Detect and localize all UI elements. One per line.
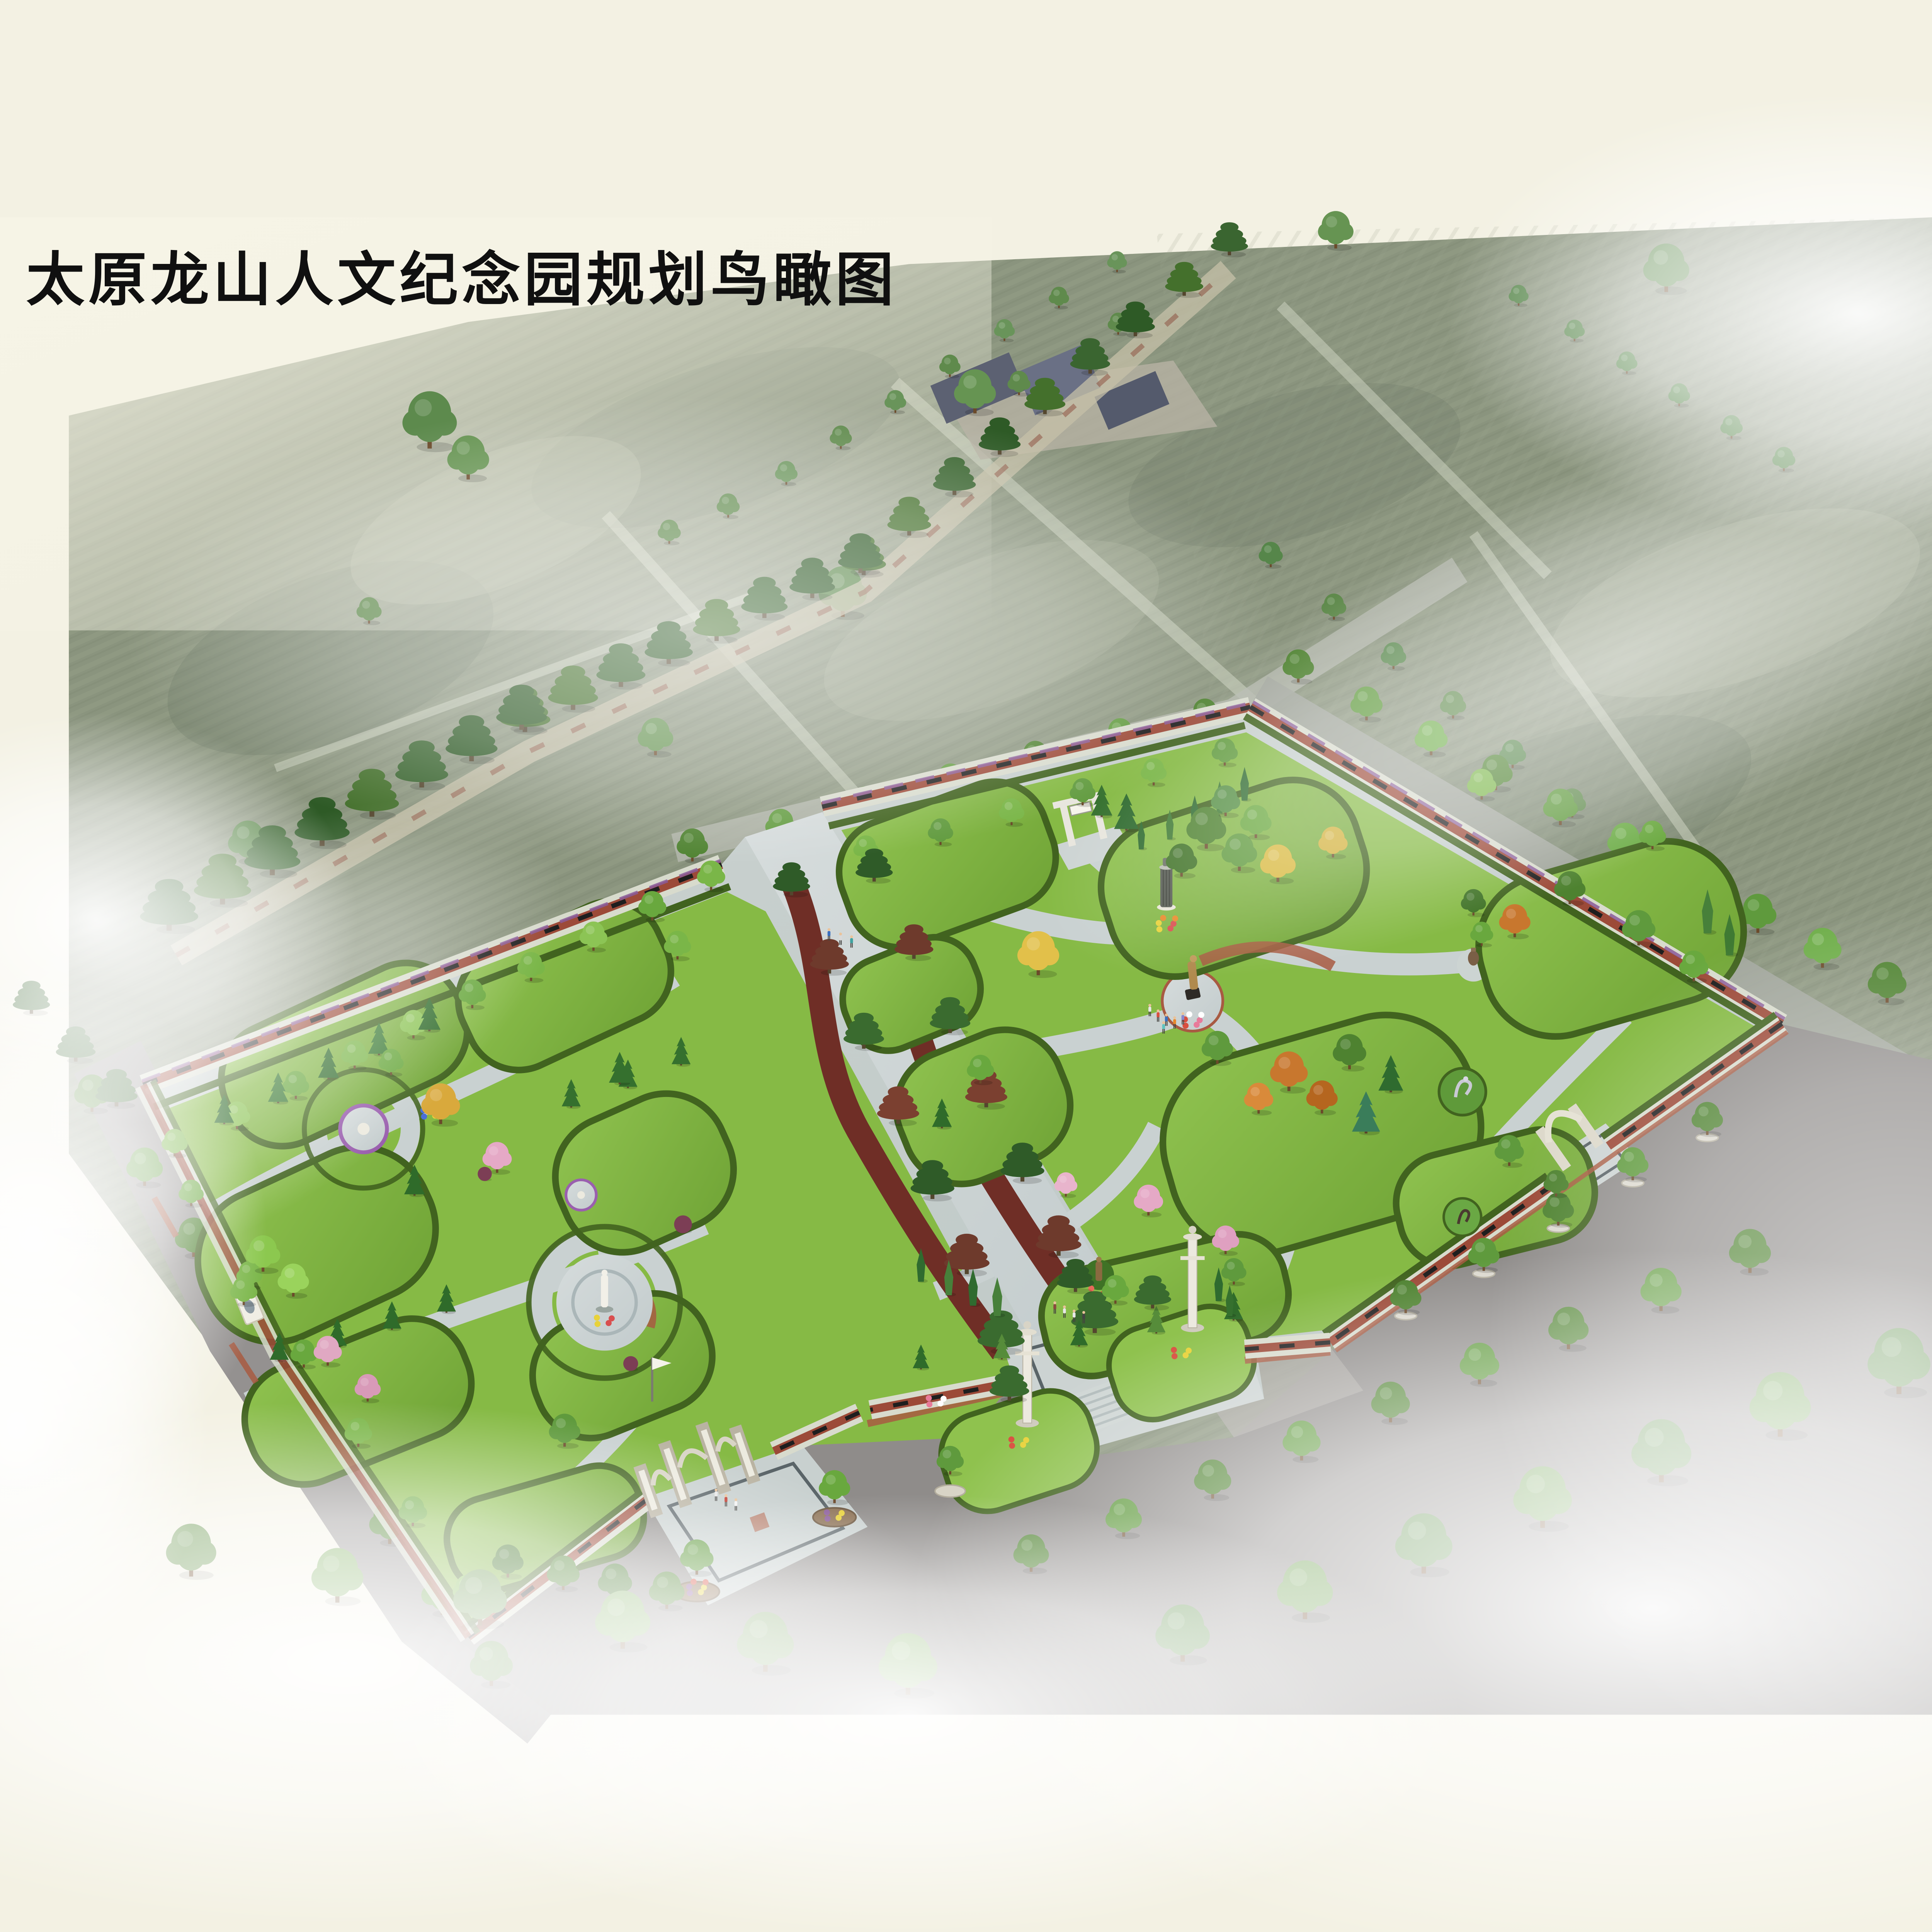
- fountain-small-2: [566, 1180, 596, 1210]
- park-plan-canvas: 太原龙山人文纪念园规划鸟瞰图: [0, 0, 1932, 1932]
- white-statue: [601, 1275, 608, 1307]
- flower-dot: [594, 1315, 600, 1321]
- bronze-dancer-sculpture: [1444, 1198, 1481, 1236]
- flower-dot: [1198, 1012, 1204, 1018]
- flower-dot: [1186, 1011, 1192, 1017]
- flower-dot: [927, 1401, 933, 1408]
- silver-abstract-sculpture: [1439, 1068, 1486, 1115]
- flower-dot: [421, 1114, 427, 1120]
- statue-plaza-left: [556, 1254, 653, 1350]
- flower-dot: [1194, 1022, 1200, 1028]
- birdseye-rendering: 太原龙山人文纪念园规划鸟瞰图: [0, 0, 1932, 1932]
- flower-dot: [937, 1400, 944, 1406]
- flower-dot: [926, 1395, 932, 1401]
- page-title: 太原龙山人文纪念园规划鸟瞰图: [26, 246, 898, 314]
- flower-dot: [595, 1321, 601, 1327]
- flower-dot: [605, 1320, 612, 1326]
